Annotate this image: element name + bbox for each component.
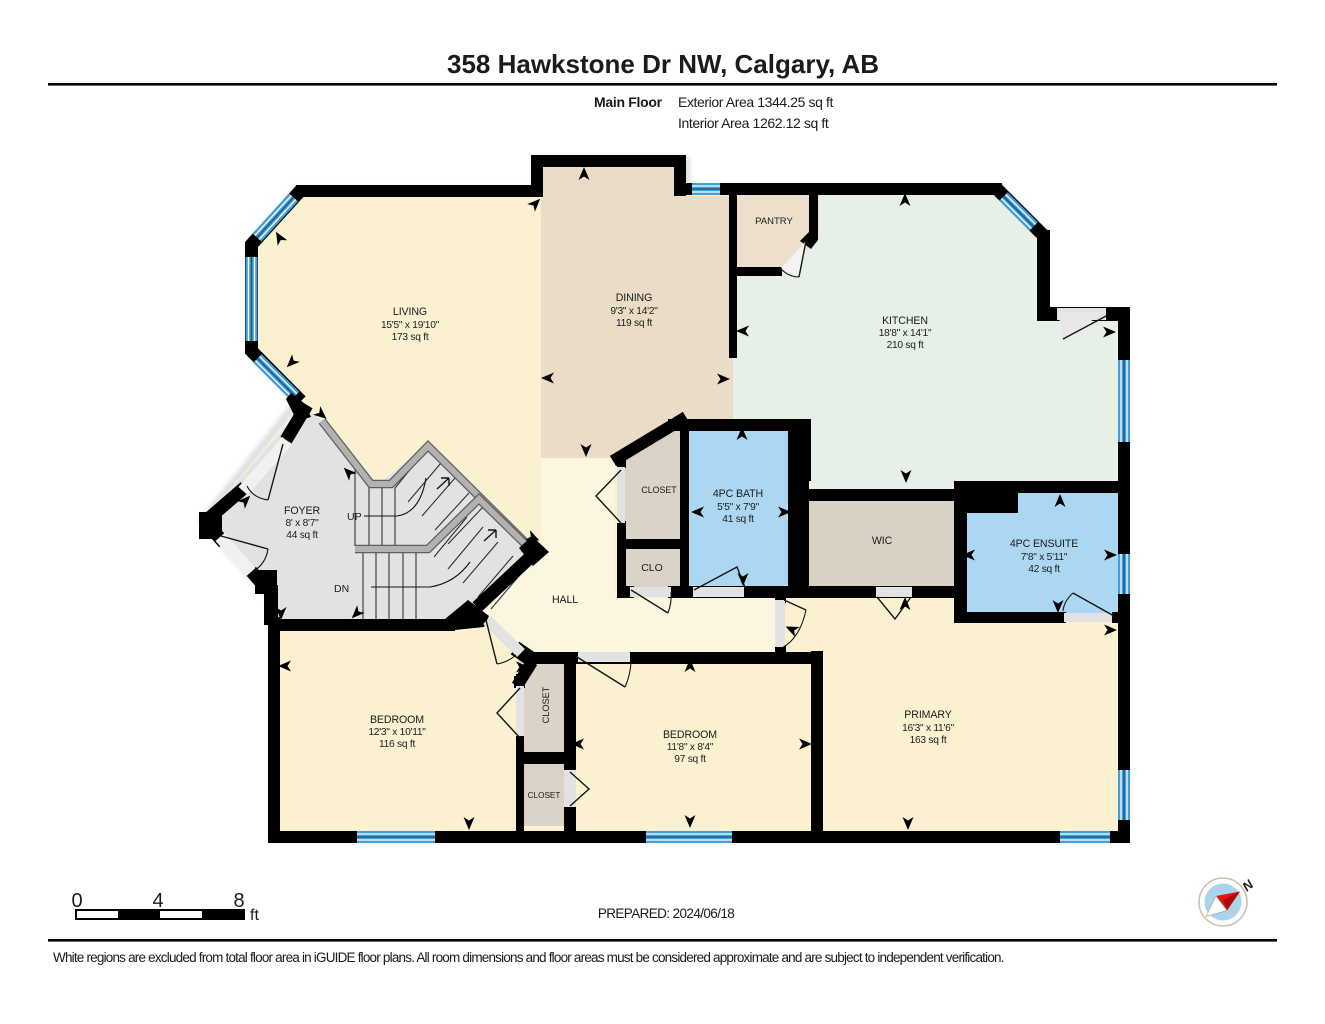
- svg-text:7'8" x 5'11": 7'8" x 5'11": [1021, 552, 1068, 563]
- svg-text:CLOSET: CLOSET: [641, 485, 677, 495]
- svg-text:UP: UP: [347, 511, 362, 523]
- svg-text:ft: ft: [250, 907, 259, 924]
- svg-text:PANTRY: PANTRY: [755, 216, 793, 227]
- svg-text:Interior Area 1262.12 sq ft: Interior Area 1262.12 sq ft: [678, 115, 829, 131]
- svg-text:358 Hawkstone Dr NW, Calgary,: 358 Hawkstone Dr NW, Calgary, AB: [447, 49, 879, 79]
- svg-text:PREPARED: 2024/06/18: PREPARED: 2024/06/18: [598, 906, 734, 921]
- svg-text:97 sq ft: 97 sq ft: [674, 754, 706, 765]
- svg-text:0: 0: [71, 890, 82, 912]
- svg-text:15'5" x 19'10": 15'5" x 19'10": [381, 320, 440, 331]
- svg-text:44 sq ft: 44 sq ft: [286, 530, 318, 541]
- svg-text:210 sq ft: 210 sq ft: [887, 340, 924, 351]
- svg-text:4PC BATH: 4PC BATH: [713, 488, 763, 500]
- svg-text:173 sq ft: 173 sq ft: [392, 332, 429, 343]
- svg-text:163 sq ft: 163 sq ft: [910, 735, 947, 746]
- svg-text:CLOSET: CLOSET: [541, 686, 551, 723]
- svg-text:119 sq ft: 119 sq ft: [616, 318, 652, 329]
- svg-text:8' x 8'7": 8' x 8'7": [285, 518, 319, 529]
- svg-text:WIC: WIC: [872, 535, 893, 547]
- svg-text:DN: DN: [334, 583, 349, 595]
- svg-text:4PC ENSUITE: 4PC ENSUITE: [1010, 538, 1078, 550]
- svg-text:CLO: CLO: [641, 562, 663, 574]
- svg-text:BEDROOM: BEDROOM: [663, 729, 717, 741]
- svg-text:LIVING: LIVING: [393, 306, 427, 318]
- svg-text:BEDROOM: BEDROOM: [370, 714, 424, 726]
- svg-text:KITCHEN: KITCHEN: [882, 315, 928, 327]
- svg-text:8: 8: [233, 890, 244, 912]
- svg-text:42 sq ft: 42 sq ft: [1028, 564, 1060, 575]
- svg-text:116 sq ft: 116 sq ft: [379, 739, 415, 750]
- svg-text:12'3" x 10'11": 12'3" x 10'11": [368, 727, 426, 738]
- svg-text:Exterior Area 1344.25 sq ft: Exterior Area 1344.25 sq ft: [678, 94, 833, 110]
- svg-text:16'3" x 11'6": 16'3" x 11'6": [902, 723, 954, 734]
- svg-text:9'3" x 14'2": 9'3" x 14'2": [610, 306, 658, 317]
- svg-text:Main Floor: Main Floor: [594, 94, 663, 110]
- svg-text:11'8" x 8'4": 11'8" x 8'4": [667, 742, 714, 753]
- svg-text:5'5" x 7'9": 5'5" x 7'9": [717, 502, 759, 513]
- svg-text:18'8" x 14'1": 18'8" x 14'1": [879, 328, 932, 339]
- svg-text:FOYER: FOYER: [284, 505, 320, 517]
- svg-text:DINING: DINING: [616, 292, 652, 304]
- svg-text:4: 4: [152, 890, 163, 912]
- svg-text:PRIMARY: PRIMARY: [904, 709, 951, 721]
- svg-text:HALL: HALL: [552, 594, 578, 606]
- svg-text:CLOSET: CLOSET: [528, 791, 561, 800]
- svg-text:41 sq ft: 41 sq ft: [722, 514, 754, 525]
- svg-text:White regions are excluded fro: White regions are excluded from total fl…: [53, 950, 1004, 965]
